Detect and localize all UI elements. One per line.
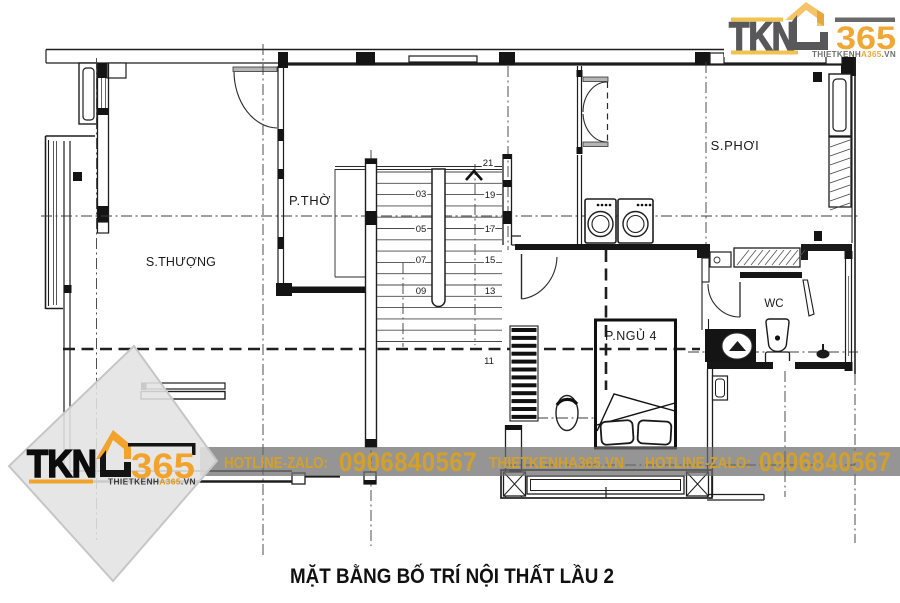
svg-text:MẶT BẰNG BỐ TRÍ NỘI THẤT LẦU 2: MẶT BẰNG BỐ TRÍ NỘI THẤT LẦU 2 <box>290 562 614 588</box>
svg-text:21: 21 <box>483 158 494 169</box>
svg-text:P.THỜ: P.THỜ <box>289 193 331 208</box>
svg-text:19: 19 <box>485 190 496 201</box>
svg-text:HOTLINE-ZALO:: HOTLINE-ZALO: <box>224 455 328 472</box>
svg-text:11: 11 <box>484 356 494 367</box>
svg-text:WC: WC <box>764 298 783 310</box>
svg-text:THIETKENHA365.VN: THIETKENHA365.VN <box>812 50 896 59</box>
svg-text:15: 15 <box>485 255 496 266</box>
svg-text:S.PHƠI: S.PHƠI <box>711 138 760 153</box>
svg-text:0906840567: 0906840567 <box>339 447 477 477</box>
svg-text:P.NGỦ 4: P.NGỦ 4 <box>605 328 657 343</box>
svg-text:03: 03 <box>416 189 427 200</box>
svg-text:HOTLINE-ZALO:: HOTLINE-ZALO: <box>645 455 751 472</box>
svg-text:17: 17 <box>485 224 496 235</box>
svg-text:09: 09 <box>416 286 427 297</box>
svg-text:0906840567: 0906840567 <box>759 447 891 477</box>
svg-text:05: 05 <box>416 224 427 235</box>
svg-text:THIETKENHA365.VN: THIETKENHA365.VN <box>489 455 624 472</box>
svg-text:S.THƯỢNG: S.THƯỢNG <box>146 255 216 269</box>
svg-text:THIETKENHA365.VN: THIETKENHA365.VN <box>108 477 196 487</box>
svg-text:13: 13 <box>485 286 496 297</box>
svg-text:07: 07 <box>416 255 427 266</box>
